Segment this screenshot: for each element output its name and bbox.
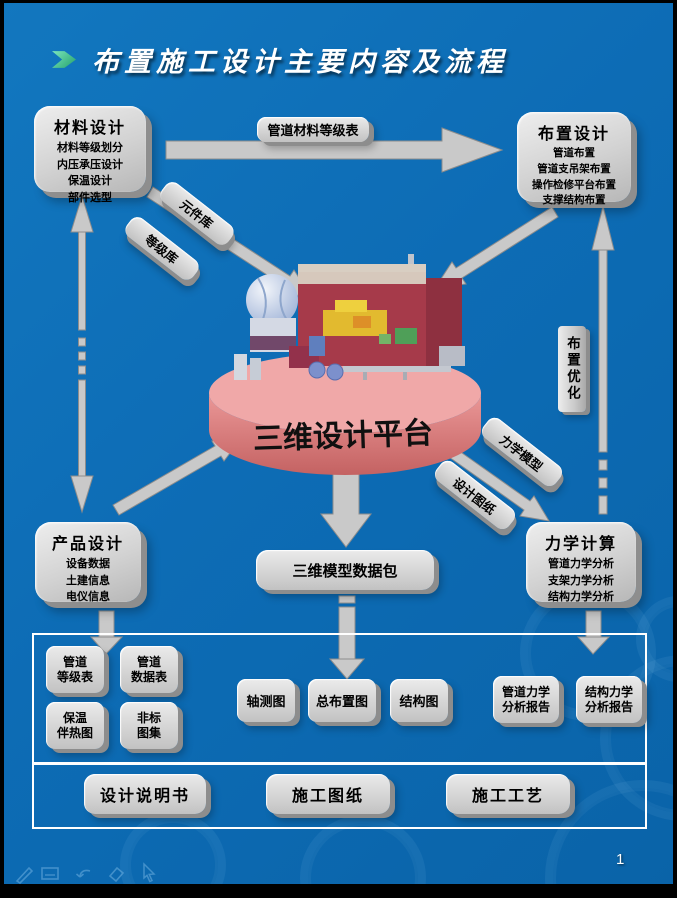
platform-3d-model: 三维设计平台 [203,250,493,480]
panel-item: 管道力学分析 [526,556,636,573]
screen-edge-right [673,0,677,898]
output-label: 分析报告 [502,700,550,715]
panel-item: 管道布置 [517,146,631,162]
output-pipe-data-table: 管道 数据表 [120,646,178,693]
output-axonometric-drawing: 轴测图 [237,679,295,722]
panel-item: 操作检修平台布置 [517,178,631,194]
panel-title: 力学计算 [526,530,636,554]
page-title: 布置施工设计主要内容及流程 [92,40,508,79]
final-output-construction-drawings: 施工图纸 [266,774,390,814]
panel-items: 管道布置 管道支吊架布置 操作检修平台布置 支撑结构布置 [517,146,631,209]
tag-model-data-package: 三维模型数据包 [256,550,434,590]
arrow-material-product-exchange [71,196,93,512]
title-bullet-arrow-icon [52,50,76,70]
output-insulation-tracing-drawing: 保温 伴热图 [46,702,104,749]
panel-item: 支撑结构布置 [517,193,631,209]
platform-label: 三维设计平台 [252,416,433,456]
output-label: 管道 [137,655,161,670]
output-label: 等级表 [57,670,93,685]
arrow-platform-to-package [321,474,371,547]
screen-edge-left [0,0,4,898]
panel-layout-design: 布置设计 管道布置 管道支吊架布置 操作检修平台布置 支撑结构布置 [517,112,631,202]
screen-edge-top [0,0,677,3]
slide: 布置施工设计主要内容及流程 [0,0,677,898]
panel-product-design: 产品设计 设备数据 土建信息 电仪信息 [35,522,141,602]
output-pipe-grade-table: 管道 等级表 [46,646,104,693]
tag-pipe-material-grade-table: 管道材料等级表 [257,117,369,142]
tag-grade-library: 等级库 [122,214,202,284]
platform-graphic: 三维设计平台 [203,250,493,480]
undo-arrow-icon[interactable] [74,866,94,883]
panel-title: 材料设计 [34,114,146,138]
panel-title: 产品设计 [35,530,141,554]
output-label: 分析报告 [585,700,633,715]
output-structure-drawing: 结构图 [390,679,448,722]
panel-item: 材料等级划分 [34,140,146,157]
screen-edge-bottom [0,884,677,898]
panel-items: 管道力学分析 支架力学分析 结构力学分析 [526,556,636,606]
panel-item: 支架力学分析 [526,573,636,590]
output-label: 结构力学 [585,685,633,700]
panel-mechanics-calculation: 力学计算 管道力学分析 支架力学分析 结构力学分析 [526,522,636,602]
output-pipe-mechanics-report: 管道力学 分析报告 [493,676,559,723]
panel-item: 保温设计 [34,173,146,190]
output-label: 非标 [137,711,161,726]
output-label: 图集 [137,726,161,741]
panel-item: 电仪信息 [35,589,141,606]
output-label: 管道力学 [502,685,550,700]
output-label: 保温 [63,711,87,726]
panel-item: 内压承压设计 [34,157,146,174]
panel-item: 土建信息 [35,573,141,590]
cursor-icon[interactable] [140,862,158,883]
slide-title-row: 布置施工设计主要内容及流程 [52,40,508,79]
final-output-construction-technology: 施工工艺 [446,774,570,814]
panel-items: 设备数据 土建信息 电仪信息 [35,556,141,606]
panel-item: 管道支吊架布置 [517,162,631,178]
output-label: 数据表 [131,670,167,685]
final-output-design-specification: 设计说明书 [84,774,206,814]
slide-icon[interactable] [40,866,60,883]
panel-item: 结构力学分析 [526,589,636,606]
arrow-layout-optimization-up [592,206,614,514]
tag-layout-optimization: 布置优化 [558,326,586,412]
panel-items: 材料等级划分 内压承压设计 保温设计 部件选型 [34,140,146,206]
eraser-icon[interactable] [104,864,126,883]
output-nonstandard-atlas: 非标 图集 [120,702,178,749]
output-general-layout-drawing: 总布置图 [308,679,376,722]
panel-item: 设备数据 [35,556,141,573]
page-number: 1 [616,851,624,868]
pen-icon[interactable] [14,864,36,884]
tag-component-library: 元件库 [157,179,237,249]
panel-title: 布置设计 [517,120,631,144]
panel-material-design: 材料设计 材料等级划分 内压承压设计 保温设计 部件选型 [34,106,146,192]
output-label: 伴热图 [57,726,93,741]
panel-item: 部件选型 [34,190,146,207]
output-label: 管道 [63,655,87,670]
output-structure-mechanics-report: 结构力学 分析报告 [576,676,642,723]
